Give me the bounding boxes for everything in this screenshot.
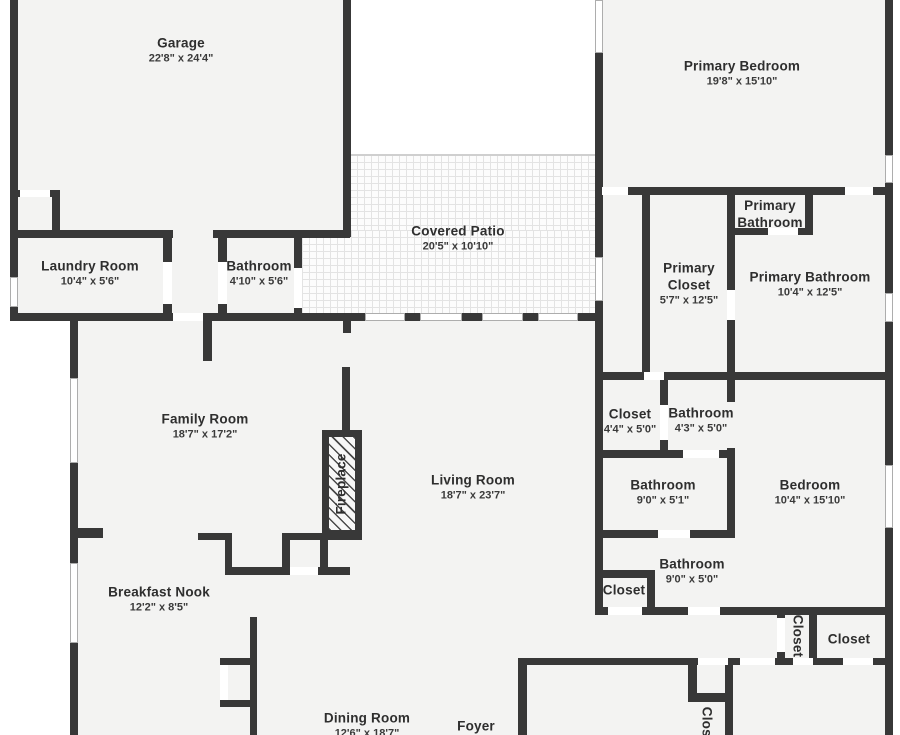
window (70, 378, 78, 463)
wall (595, 321, 603, 378)
room-label-living-room: Living Room18'7" x 23'7" (431, 473, 515, 504)
room-name: Breakfast Nook (108, 585, 210, 602)
door-opening (294, 268, 302, 308)
wall (52, 190, 60, 237)
wall (198, 533, 232, 540)
room-name: Family Room (162, 412, 249, 429)
wall (727, 372, 735, 402)
door-opening (644, 372, 664, 380)
window (885, 293, 893, 322)
wall (225, 567, 350, 575)
door-opening (793, 658, 813, 665)
room-label-closet: Closet (698, 707, 715, 735)
room-label-bedroom: Bedroom10'4" x 15'10" (775, 478, 846, 509)
room-name: Covered Patio (411, 224, 504, 241)
room-dimensions: 19'8" x 15'10" (684, 76, 800, 90)
door-opening (608, 607, 642, 615)
window (538, 313, 578, 321)
room-label-family-room: Family Room18'7" x 17'2" (162, 412, 249, 443)
room-name: Living Room (431, 473, 515, 490)
room-label-bathroom: Bathroom9'0" x 5'0" (659, 557, 724, 588)
wall (203, 313, 212, 361)
room-dimensions: 4'4" x 5'0" (604, 424, 656, 438)
window (885, 465, 893, 528)
wall (809, 615, 817, 658)
room-label-primary-bedroom: Primary Bedroom19'8" x 15'10" (684, 59, 800, 90)
room-name: Foyer (457, 719, 495, 735)
door-opening (843, 658, 873, 665)
room-dimensions: 4'10" x 5'6" (226, 276, 291, 290)
room-dimensions: 10'4" x 5'6" (41, 276, 139, 290)
room-floor (595, 0, 893, 735)
room-label-bathroom: Bathroom4'10" x 5'6" (226, 259, 291, 290)
room-name: Bathroom (226, 259, 291, 276)
door-opening (683, 450, 719, 458)
door-opening (20, 190, 50, 197)
wall (343, 0, 351, 237)
room-dimensions: 9'0" x 5'0" (659, 574, 724, 588)
room-name: Garage (149, 36, 214, 53)
room-name: Bathroom (668, 406, 733, 423)
fireplace-label-text: Fireplace (334, 453, 351, 514)
room-name: Dining Room (324, 711, 410, 728)
door-opening (777, 618, 785, 652)
room-name: Primary Closet (647, 260, 732, 294)
window (70, 563, 78, 643)
wall (213, 230, 350, 238)
door-opening (740, 658, 775, 665)
room-label-breakfast-nook: Breakfast Nook12'2" x 8'5" (108, 585, 210, 616)
room-dimensions: 12'6" x 18'7" (324, 728, 410, 735)
wall (10, 0, 18, 321)
room-name: Closet (603, 583, 645, 600)
wall (250, 617, 257, 735)
room-label-closet: Closet4'4" x 5'0" (604, 407, 656, 438)
wall (220, 700, 257, 707)
wall (595, 570, 655, 578)
window (595, 257, 603, 301)
room-label-closet: Closet (828, 632, 870, 649)
wall (342, 367, 350, 430)
patio-tile-floor (350, 155, 595, 231)
patio-edge-line (350, 154, 595, 156)
wall (220, 658, 257, 665)
window (420, 313, 462, 321)
room-name: Closet (789, 615, 806, 657)
room-name: Bathroom (630, 478, 695, 495)
room-dimensions: 5'7" x 12'5" (647, 294, 732, 308)
room-dimensions: 20'5" x 10'10" (411, 241, 504, 255)
wall (595, 378, 603, 538)
room-label-closet: Closet (603, 583, 645, 600)
room-dimensions: 18'7" x 23'7" (431, 490, 515, 504)
room-name: Closet (604, 407, 656, 424)
wall (343, 321, 351, 333)
wall (10, 230, 173, 238)
floor-plan: FireplaceGarage22'8" x 24'4"Primary Bedr… (0, 0, 900, 735)
room-dimensions: 10'4" x 12'5" (750, 287, 871, 301)
room-name: Closet (828, 632, 870, 649)
room-label-garage: Garage22'8" x 24'4" (149, 36, 214, 67)
window (595, 0, 603, 53)
door-opening (220, 665, 228, 700)
door-opening (660, 405, 668, 440)
door-opening (688, 607, 720, 615)
window (482, 313, 523, 321)
room-dimensions: 9'0" x 5'1" (630, 495, 695, 509)
room-name: Bedroom (775, 478, 846, 495)
wall (727, 448, 735, 538)
room-name: Primary Bathroom (723, 198, 818, 232)
room-name: Primary Bathroom (750, 270, 871, 287)
room-label-primary-closet: Primary Closet5'7" x 12'5" (647, 260, 732, 308)
room-label-primary-bathroom: Primary Bathroom10'4" x 12'5" (750, 270, 871, 301)
door-opening (602, 187, 628, 195)
wall (595, 372, 893, 380)
wall (725, 663, 733, 735)
door-opening (173, 313, 203, 321)
room-label-foyer: Foyer (457, 719, 495, 735)
door-opening (845, 187, 873, 195)
room-label-dining-room: Dining Room12'6" x 18'7" (324, 711, 410, 735)
door-opening (163, 262, 172, 304)
wall (320, 540, 328, 575)
room-label-closet: Closet (789, 615, 806, 657)
room-name: Bathroom (659, 557, 724, 574)
room-label-bathroom: Bathroom9'0" x 5'1" (630, 478, 695, 509)
room-name: Laundry Room (41, 259, 139, 276)
room-dimensions: 22'8" x 24'4" (149, 53, 214, 67)
room-dimensions: 18'7" x 17'2" (162, 429, 249, 443)
room-dimensions: 4'3" x 5'0" (668, 423, 733, 437)
room-label-covered-patio: Covered Patio20'5" x 10'10" (411, 224, 504, 255)
room-name: Primary Bedroom (684, 59, 800, 76)
room-name: Closet (698, 707, 715, 735)
window (10, 277, 18, 307)
room-label-primary-bathroom: Primary Bathroom (723, 198, 818, 232)
door-opening (290, 567, 318, 575)
window (365, 313, 405, 321)
door-opening (658, 530, 690, 538)
room-label-laundry-room: Laundry Room10'4" x 5'6" (41, 259, 139, 290)
fireplace-label: Fireplace (334, 453, 351, 514)
wall (727, 607, 893, 615)
door-opening (698, 658, 728, 665)
wall (518, 658, 527, 735)
wall (885, 0, 893, 735)
room-label-bathroom: Bathroom4'3" x 5'0" (668, 406, 733, 437)
window (885, 155, 893, 183)
room-dimensions: 12'2" x 8'5" (108, 602, 210, 616)
room-dimensions: 10'4" x 15'10" (775, 495, 846, 509)
